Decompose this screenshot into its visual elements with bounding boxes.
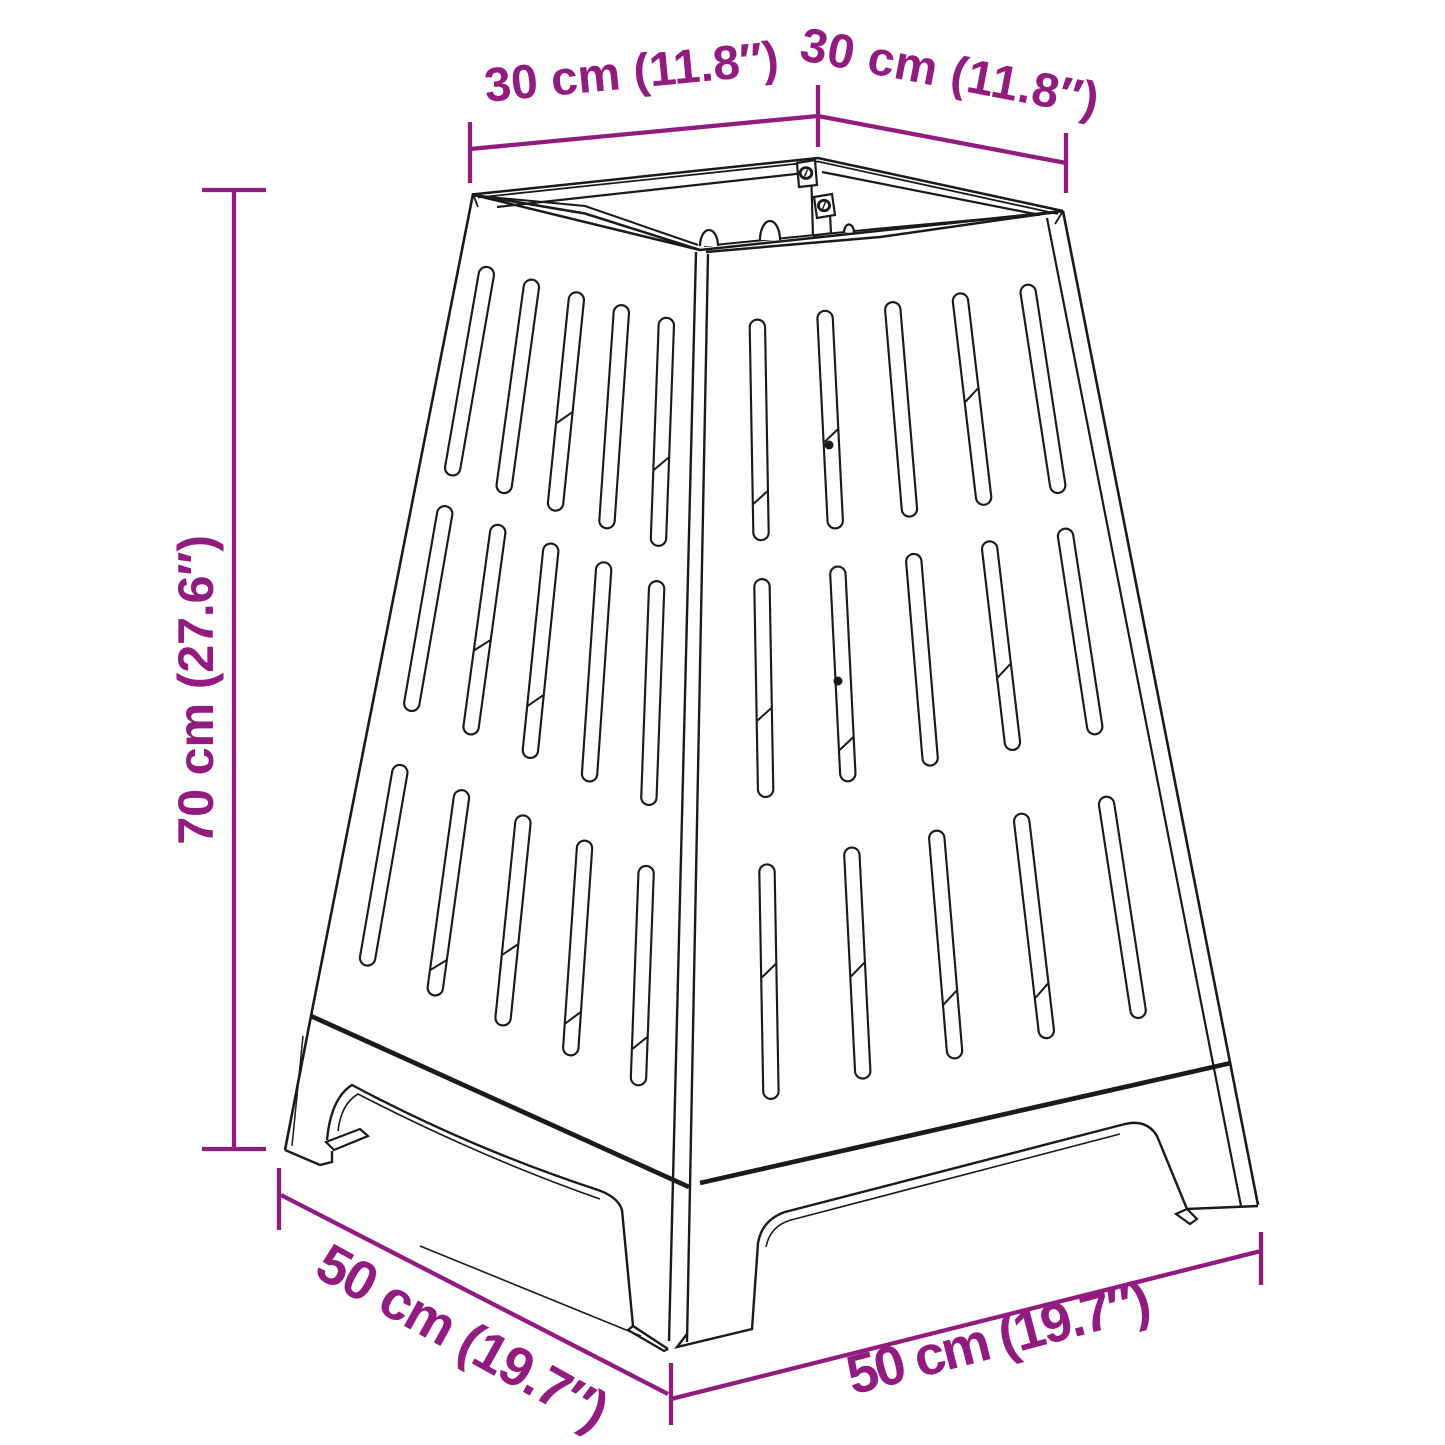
svg-text:70 cm (27.6″): 70 cm (27.6″) (167, 535, 224, 844)
